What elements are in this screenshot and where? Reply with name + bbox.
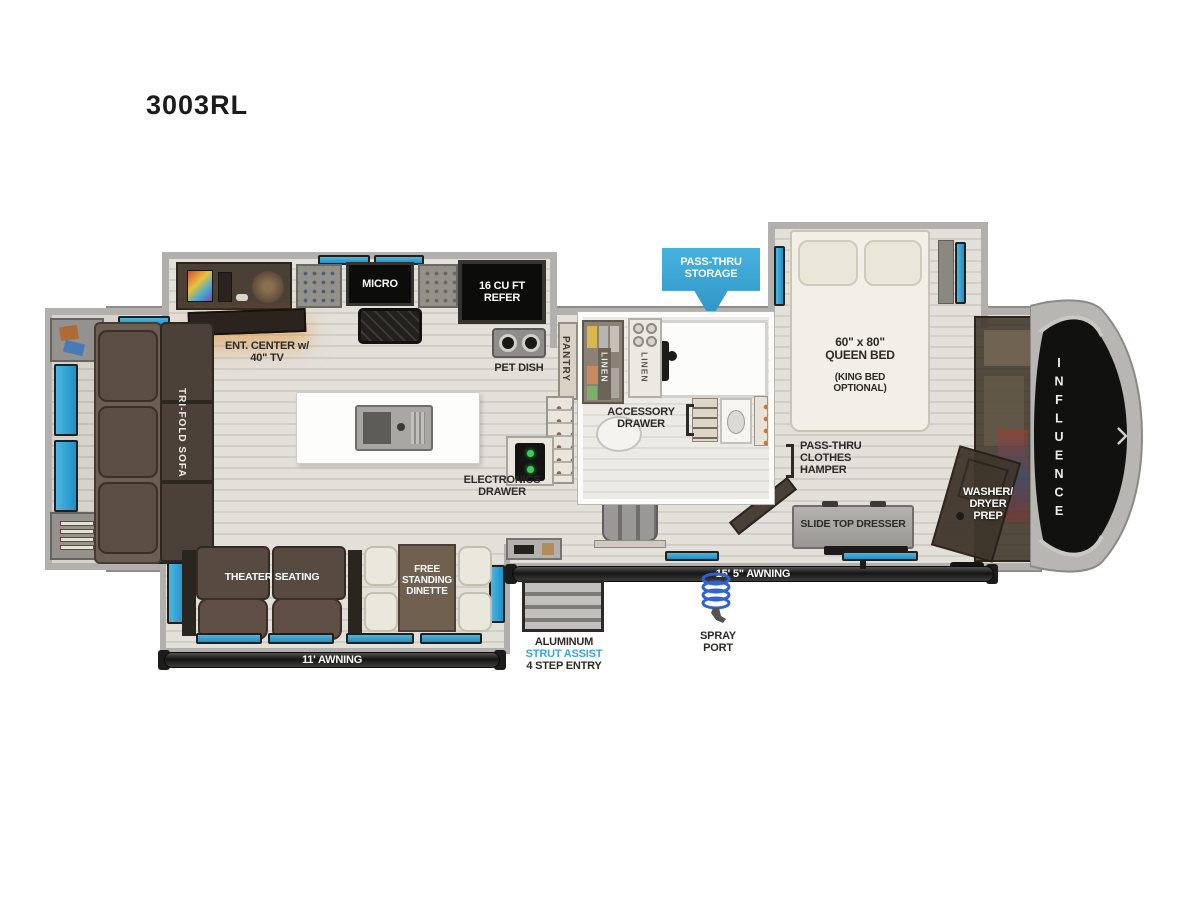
dinette-chair [458,592,492,632]
control-knob [236,294,248,301]
window [54,440,78,512]
brand-logo: INFLUENCE [1046,356,1066,538]
sofa-cushion [98,482,158,554]
entry-4-step-label: 4 STEP ENTRY [512,660,616,672]
wall-bracket-icon [686,404,694,436]
window [196,633,262,644]
books [60,521,94,526]
books [60,537,94,542]
awning-11-label: 11' AWNING [302,654,362,666]
pantry-label: PANTRY [560,336,570,382]
sink-basin [363,412,391,444]
step-base [594,540,666,548]
dresser-handle [870,501,886,507]
tri-fold-sofa-back [160,322,214,564]
counter-item [542,543,554,555]
pet-dish-label: PET DISH [478,362,560,374]
books [60,529,94,534]
microwave: MICRO [346,262,414,306]
cabinet-item [59,325,79,341]
shower-head-icon [667,351,677,361]
drain-board [411,412,425,444]
dinette-chair [364,592,398,632]
refer-label: 16 CU FT REFER [479,280,525,304]
theater-end-table [182,550,196,636]
rolled-towel [646,336,657,347]
kitchen-island [296,392,480,464]
floorplan-page: { "model": "3003RL", "brand": "INFLUENCE… [0,0,1200,900]
green-light-icon [527,466,534,473]
bed-pillow [798,240,858,286]
pass-thru-storage-label: PASS-THRU STORAGE [662,256,760,280]
towel [610,326,619,352]
queen-bed-option-label: (KING BED OPTIONAL) [800,372,920,394]
washer-dryer-label: WASHER/ DRYER PREP [948,486,1028,522]
entry-label-group: ALUMINUM STRUT ASSIST 4 STEP ENTRY [512,636,616,672]
speaker-panel [296,264,342,308]
entry-strut-assist-label: STRUT ASSIST [512,648,616,660]
wall-bracket-icon [786,444,794,478]
speaker-panel [418,264,458,308]
accessory-drawer-label: ACCESSORY DRAWER [598,406,684,430]
stove [358,308,422,344]
queen-bed-label: 60" x 80" QUEEN BED [796,336,924,362]
linen-left-label: LINEN [600,352,609,383]
window [774,246,785,306]
dinette-chair [364,546,398,586]
sofa-cushion [98,330,158,402]
window [54,364,78,436]
towel [587,326,597,348]
window [955,242,966,304]
ent-center-label: ENT. CENTER w/ 40" TV [196,340,338,364]
electronics-drawer-label: ELECTRONICS DRAWER [450,474,554,498]
pet-bowl [522,334,540,352]
theater-end-table [348,550,362,636]
window [665,551,719,561]
counter-item [514,545,534,554]
spray-port-label: SPRAY PORT [682,630,754,654]
green-light-icon [527,450,534,457]
faucet-icon [397,423,405,431]
towel [610,368,619,398]
rolled-towel [646,323,657,334]
window [842,551,918,561]
speaker-round [252,271,284,303]
spray-port-coil-icon [698,572,734,626]
slide-top-dresser-label: SLIDE TOP DRESSER [796,519,910,531]
towel [587,386,597,400]
linen-closet-right: LINEN [628,318,662,398]
cabinet-item [63,340,85,356]
linen-closet-left: LINEN [582,320,624,404]
slide-awning-bar: 11' AWNING [164,652,500,668]
rolled-towel [633,323,644,334]
wardrobe-shelf [984,330,1032,366]
rolled-towel [633,336,644,347]
pet-bowl [499,334,517,352]
entry-steps [522,580,604,632]
window [346,633,414,644]
vanity-drawers [692,398,718,442]
fireplace-screen [187,270,213,302]
vanity-sink [720,398,752,444]
window [420,633,482,644]
shower [650,320,768,398]
vanity-knobs [754,396,768,446]
dinette-label: FREE STANDING DINETTE [398,564,456,597]
sofa-cushion [98,406,158,478]
slide-top-dresser: SLIDE TOP DRESSER [792,505,914,549]
sink-basin [727,410,745,434]
dresser-handle [822,501,838,507]
dinette-chair [458,546,492,586]
theater-seating-label: THEATER SEATING [204,572,340,584]
nightstand [938,240,954,304]
model-title: 3003RL [146,90,248,121]
pet-dish [492,328,546,358]
entry-aluminum-label: ALUMINUM [512,636,616,648]
books [60,545,94,550]
micro-label: MICRO [362,278,398,290]
linen-right-label: LINEN [640,352,649,383]
window [268,633,334,644]
entertainment-center [176,262,292,310]
island-sink [355,405,433,451]
stereo-panel [218,272,232,302]
entry-counter [506,538,562,560]
clothes-hamper-label: PASS-THRU CLOTHES HAMPER [800,440,886,476]
tri-fold-sofa-label: TRI-FOLD SOFA [176,388,186,478]
bed-pillow [864,240,922,286]
refrigerator: 16 CU FT REFER [458,260,546,324]
